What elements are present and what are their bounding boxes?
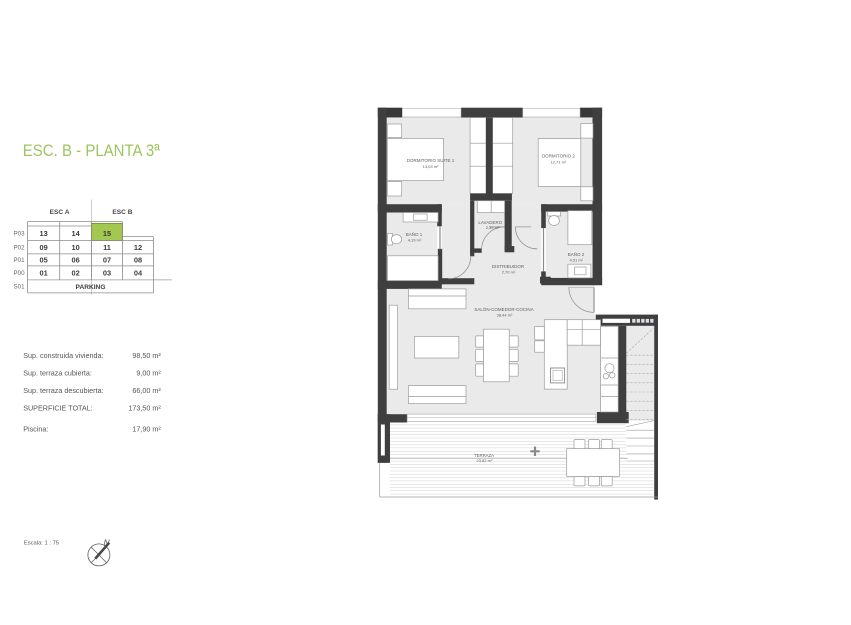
svg-text:4,19 m²: 4,19 m² [408,238,422,243]
svg-text:04: 04 [134,269,143,278]
svg-text:ESC B: ESC B [112,209,132,216]
svg-text:23,82 m²: 23,82 m² [477,458,493,463]
svg-text:S01: S01 [14,284,26,291]
svg-text:BAÑO 1: BAÑO 1 [406,231,423,237]
svg-text:12,71 m²: 12,71 m² [551,160,567,165]
svg-text:DORMITORIO SUITE 1: DORMITORIO SUITE 1 [407,158,455,163]
svg-text:ESC A: ESC A [50,209,70,216]
svg-text:07: 07 [103,256,111,265]
svg-text:15: 15 [103,229,111,238]
svg-text:SUPERFICIE TOTAL:: SUPERFICIE TOTAL: [23,404,93,413]
svg-text:13: 13 [40,229,48,238]
svg-text:4,51 m²: 4,51 m² [570,257,584,262]
svg-text:BAÑO 2: BAÑO 2 [568,251,585,257]
svg-text:LAVADERO: LAVADERO [478,220,502,225]
svg-text:38,44 m²: 38,44 m² [497,313,513,318]
svg-text:02: 02 [71,269,79,278]
svg-text:Escala: 1 : 75: Escala: 1 : 75 [24,541,59,547]
svg-text:P02: P02 [14,245,26,252]
svg-text:12: 12 [134,243,142,252]
svg-text:08: 08 [134,256,142,265]
svg-text:66,00 m²: 66,00 m² [132,386,161,395]
svg-text:2,39 m²: 2,39 m² [486,225,500,230]
svg-text:P01: P01 [14,257,26,264]
svg-text:10: 10 [71,243,79,252]
svg-text:01: 01 [40,269,48,278]
svg-text:06: 06 [71,256,79,265]
svg-text:DORMITORIO 2: DORMITORIO 2 [542,154,575,159]
svg-text:Sup. terraza descubierta:: Sup. terraza descubierta: [23,386,103,395]
svg-text:05: 05 [40,256,48,265]
svg-text:DISTRIBUIDOR: DISTRIBUIDOR [492,264,525,269]
svg-text:SALÓN-COMEDOR-COCINA: SALÓN-COMEDOR-COCINA [474,306,533,312]
svg-text:P03: P03 [14,231,26,238]
svg-text:ESC. B - PLANTA 3ª: ESC. B - PLANTA 3ª [23,141,161,160]
svg-text:173,50 m²: 173,50 m² [128,404,161,413]
svg-text:09: 09 [40,243,48,252]
svg-text:P00: P00 [14,270,26,277]
svg-text:11: 11 [103,243,111,252]
svg-text:03: 03 [103,269,111,278]
svg-text:13,03 m²: 13,03 m² [423,164,439,169]
svg-text:17,90 m²: 17,90 m² [132,425,161,434]
svg-text:PARKING: PARKING [76,284,106,291]
svg-text:9,00 m²: 9,00 m² [136,369,161,378]
svg-text:Sup. terraza cubierta:: Sup. terraza cubierta: [23,369,92,378]
svg-text:2,70 m²: 2,70 m² [502,269,516,274]
svg-text:Sup. construida vivienda:: Sup. construida vivienda: [23,351,103,360]
svg-text:N: N [104,538,110,547]
svg-text:98,50 m²: 98,50 m² [132,351,161,360]
svg-text:Piscina:: Piscina: [23,425,48,434]
svg-text:14: 14 [71,229,80,238]
